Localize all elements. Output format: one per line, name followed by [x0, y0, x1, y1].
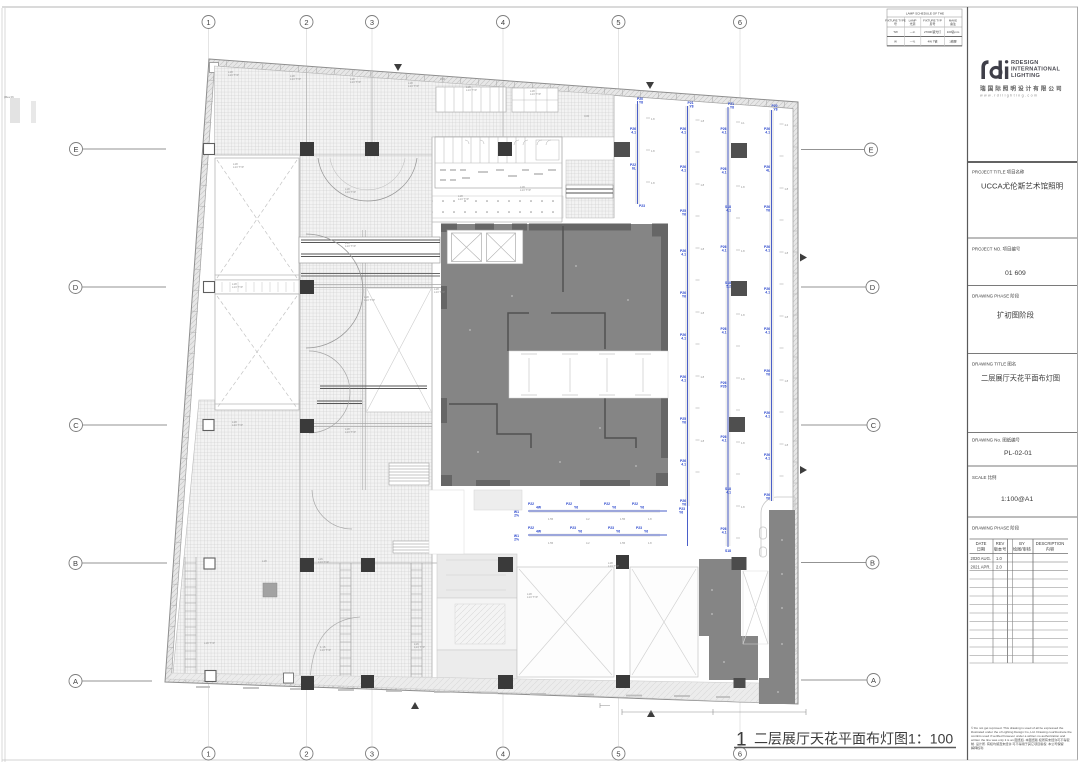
- svg-text:1.8: 1.8: [648, 541, 652, 545]
- svg-text:内容: 内容: [1046, 546, 1054, 553]
- svg-text:1: 1: [206, 749, 210, 758]
- svg-text:3: 3: [370, 749, 374, 758]
- svg-text:DRAWING PHASE 阶段: DRAWING PHASE 阶段: [972, 293, 1020, 300]
- svg-text:1.55: 1.55: [548, 541, 554, 545]
- svg-text:1.8: 1.8: [701, 375, 705, 379]
- svg-text:L13 TYP: L13 TYP: [350, 80, 361, 84]
- svg-text:Y6: Y6: [766, 373, 770, 377]
- svg-text:P23: P23: [570, 526, 576, 530]
- svg-text:1.55: 1.55: [620, 517, 626, 521]
- svg-text:DRAWING PHASE 阶段: DRAWING PHASE 阶段: [972, 525, 1020, 532]
- svg-text:4.1: 4.1: [681, 337, 686, 341]
- svg-text:2021 APR.: 2021 APR.: [971, 565, 991, 570]
- svg-text:P23: P23: [636, 526, 642, 530]
- svg-text:4.1: 4.1: [722, 331, 727, 335]
- svg-text:1.8: 1.8: [785, 187, 789, 191]
- svg-text:4.1: 4.1: [765, 249, 770, 253]
- svg-text:6: 6: [738, 18, 742, 27]
- svg-text:E: E: [868, 145, 873, 154]
- svg-text:4.1: 4.1: [681, 169, 686, 173]
- svg-text:L13 TYP: L13 TYP: [520, 188, 531, 192]
- svg-text:厉号: 厉号: [930, 21, 936, 26]
- svg-text:1.8: 1.8: [785, 315, 789, 319]
- svg-text:2020 AUG.: 2020 AUG.: [971, 556, 992, 561]
- svg-text:4.1: 4.1: [722, 439, 727, 443]
- svg-text:1.8: 1.8: [741, 313, 745, 317]
- svg-text:1镇瞿: 1镇瞿: [949, 39, 956, 44]
- svg-text:C: C: [871, 421, 877, 430]
- svg-text:6L: 6L: [632, 167, 636, 171]
- svg-text:Y6: Y6: [682, 421, 686, 425]
- svg-text:DATE: DATE: [976, 541, 987, 546]
- svg-text:1:100@A1: 1:100@A1: [1001, 496, 1033, 503]
- svg-text:1.8: 1.8: [648, 517, 652, 521]
- svg-text:1.8: 1.8: [741, 249, 745, 253]
- svg-text:Y6: Y6: [679, 511, 683, 515]
- svg-text:4.2: 4.2: [785, 123, 789, 127]
- svg-text:L13 TYP: L13 TYP: [364, 298, 375, 302]
- svg-text:L13 TYP: L13 TYP: [318, 560, 329, 564]
- svg-text:P22: P22: [604, 502, 610, 506]
- svg-text:1.55: 1.55: [620, 541, 626, 545]
- svg-text:DRAWING TITLE 图名: DRAWING TITLE 图名: [972, 361, 1016, 368]
- svg-text:4.1: 4.1: [726, 491, 731, 495]
- svg-text:LAMP SCHEDULE OF THE: LAMP SCHEDULE OF THE: [906, 12, 944, 16]
- svg-text:C30: C30: [440, 77, 446, 81]
- svg-text:4.1: 4.1: [765, 291, 770, 295]
- svg-text:1.55: 1.55: [548, 517, 554, 521]
- svg-text:L18 TYP: L18 TYP: [204, 641, 215, 645]
- svg-text:1.8: 1.8: [741, 505, 745, 509]
- svg-text:4: 4: [501, 749, 505, 758]
- svg-text:P22: P22: [632, 502, 638, 506]
- svg-text:Y6: Y6: [682, 213, 686, 217]
- svg-text:P26: P26: [720, 385, 726, 389]
- svg-text:4.1: 4.1: [681, 379, 686, 383]
- svg-text:3: 3: [370, 18, 374, 27]
- svg-text:二层展厅天花平面布灯图: 二层展厅天花平面布灯图: [981, 374, 1060, 383]
- svg-text:4.2: 4.2: [586, 541, 590, 545]
- svg-text:4.1: 4.1: [765, 415, 770, 419]
- svg-text:扩初图阶段: 扩初图阶段: [997, 311, 1035, 320]
- svg-text:Y6: Y6: [574, 506, 578, 510]
- svg-text:2.0: 2.0: [996, 565, 1002, 570]
- svg-text:5: 5: [616, 749, 620, 758]
- svg-text:4.1: 4.1: [722, 171, 727, 175]
- svg-text:A: A: [871, 676, 876, 685]
- svg-text:Y6: Y6: [644, 530, 648, 534]
- svg-text:L13 TYP: L13 TYP: [228, 73, 239, 77]
- svg-text:PROJECT TITLE 项目名称: PROJECT TITLE 项目名称: [972, 169, 1025, 176]
- svg-text:L13 TYP: L13 TYP: [345, 244, 356, 248]
- svg-text:4W: 4W: [536, 506, 542, 510]
- svg-text:LIGHTING: LIGHTING: [1011, 73, 1040, 79]
- svg-text:4.2: 4.2: [586, 517, 590, 521]
- svg-text:RDESIGN: RDESIGN: [1011, 60, 1039, 66]
- svg-text:TW: TW: [893, 30, 898, 34]
- svg-text:L13 TYP: L13 TYP: [608, 564, 619, 568]
- svg-text:L13 TYP: L13 TYP: [414, 645, 425, 649]
- svg-text:SCALE 比例: SCALE 比例: [972, 474, 997, 481]
- svg-text:1.8: 1.8: [741, 441, 745, 445]
- svg-text:C: C: [73, 421, 79, 430]
- svg-text:D: D: [870, 283, 876, 292]
- svg-text:4.1: 4.1: [765, 131, 770, 135]
- svg-text:4.1: 4.1: [681, 463, 686, 467]
- svg-text:1.8: 1.8: [701, 247, 705, 251]
- svg-text:2: 2: [304, 18, 308, 27]
- svg-text:L13 TYP: L13 TYP: [345, 190, 356, 194]
- svg-text:Y8: Y8: [689, 105, 693, 109]
- svg-text:Y6: Y6: [640, 506, 644, 510]
- svg-text:4.1: 4.1: [765, 457, 770, 461]
- svg-text:4.1: 4.1: [722, 531, 727, 535]
- svg-text:6: 6: [738, 749, 742, 758]
- svg-text:L13 TYP: L13 TYP: [458, 197, 469, 201]
- svg-text:P22: P22: [528, 526, 534, 530]
- svg-text:D: D: [73, 283, 79, 292]
- svg-text:二层展厅天花平面布灯图1：100: 二层展厅天花平面布灯图1：100: [754, 731, 953, 747]
- svg-text:—¼: —¼: [910, 30, 916, 34]
- svg-text:4.1: 4.1: [681, 253, 686, 257]
- svg-text:A: A: [73, 677, 78, 686]
- svg-text:瑞国际照明设计有限公司: 瑞国际照明设计有限公司: [980, 85, 1064, 93]
- svg-text:1: 1: [206, 18, 210, 27]
- svg-text:1.8: 1.8: [651, 149, 655, 153]
- svg-text:4.1: 4.1: [741, 121, 745, 125]
- svg-text:Y6: Y6: [578, 530, 582, 534]
- svg-text:L13 TYP: L13 TYP: [345, 430, 356, 434]
- svg-text:版本号: 版本号: [994, 546, 1007, 553]
- svg-text:L13 TYP: L13 TYP: [320, 648, 331, 652]
- svg-text:P22: P22: [528, 502, 534, 506]
- svg-text:DRAWING No. 图纸编号: DRAWING No. 图纸编号: [972, 437, 1021, 444]
- svg-text:Y6: Y6: [682, 503, 686, 507]
- svg-text:P23: P23: [608, 526, 614, 530]
- svg-text:Y6: Y6: [616, 530, 620, 534]
- svg-text:INTERNATIONAL: INTERNATIONAL: [1011, 67, 1060, 73]
- svg-text:L13 TYP: L13 TYP: [466, 88, 477, 92]
- svg-text:Y6: Y6: [766, 497, 770, 501]
- svg-text:1.8: 1.8: [701, 119, 705, 123]
- svg-text:光源: 光源: [910, 21, 916, 26]
- svg-text:2700K镇光灯: 2700K镇光灯: [924, 29, 941, 34]
- svg-text:备注: 备注: [950, 21, 956, 26]
- svg-text:号: 号: [894, 21, 897, 26]
- svg-text:4W T镇: 4W T镇: [928, 39, 938, 44]
- svg-text:P23: P23: [639, 204, 645, 208]
- svg-text:1.8: 1.8: [785, 379, 789, 383]
- svg-text:1.8: 1.8: [651, 117, 655, 121]
- svg-text:L13 TYP: L13 TYP: [408, 84, 419, 88]
- svg-text:1.8: 1.8: [741, 185, 745, 189]
- svg-text:UCCA尤伦斯艺术馆照明: UCCA尤伦斯艺术馆照明: [981, 181, 1064, 191]
- svg-text:1.8: 1.8: [741, 377, 745, 381]
- svg-text:制. 设计所. 有权均留直未经许 可不得用于其它项目版权.: 制. 设计所. 有权均留直未经许 可不得用于其它项目版权. 本公司保留: [971, 741, 1064, 746]
- svg-text:L13 TYP: L13 TYP: [232, 423, 243, 427]
- svg-text:—½: —½: [910, 40, 916, 44]
- svg-text:5.2: 5.2: [726, 285, 731, 289]
- svg-text:www.rdilighting.com: www.rdilighting.com: [980, 94, 1038, 98]
- svg-text:L13 TYP: L13 TYP: [434, 290, 445, 294]
- svg-text:2%: 2%: [514, 538, 519, 542]
- svg-text:Y8: Y8: [773, 108, 777, 112]
- svg-text:Y6: Y6: [612, 506, 616, 510]
- svg-text:Y6: Y6: [682, 295, 686, 299]
- svg-text:1.8: 1.8: [701, 311, 705, 315]
- svg-text:C30: C30: [584, 114, 590, 118]
- svg-text:4.1: 4.1: [681, 131, 686, 135]
- svg-text:4.1: 4.1: [722, 131, 727, 135]
- svg-text:5: 5: [616, 18, 620, 27]
- svg-text:L13 TYP: L13 TYP: [527, 595, 538, 599]
- svg-text:4.1: 4.1: [631, 131, 636, 135]
- svg-text:P22: P22: [566, 502, 572, 506]
- svg-text:REV: REV: [996, 541, 1005, 546]
- svg-text:L13 TYP: L13 TYP: [232, 285, 243, 289]
- svg-text:B: B: [870, 558, 875, 567]
- svg-text:4W: 4W: [536, 530, 542, 534]
- svg-text:Y6: Y6: [766, 209, 770, 213]
- svg-text:L13 TYP: L13 TYP: [233, 165, 244, 169]
- svg-text:4.1: 4.1: [726, 209, 731, 213]
- svg-text:解释权利.: 解释权利.: [971, 745, 984, 750]
- svg-text:绘图/审核: 绘图/审核: [1013, 546, 1032, 553]
- svg-text:1.8: 1.8: [701, 183, 705, 187]
- svg-text:S18: S18: [725, 549, 731, 553]
- svg-text:PL-02-01: PL-02-01: [1004, 450, 1032, 457]
- svg-text:W: W: [894, 40, 897, 44]
- svg-text:Y8: Y8: [639, 101, 643, 105]
- svg-text:4.1: 4.1: [722, 249, 727, 253]
- svg-text:1.0: 1.0: [996, 556, 1002, 561]
- svg-text:L13 TYP: L13 TYP: [290, 77, 301, 81]
- svg-text:2: 2: [304, 749, 308, 758]
- svg-text:1.8: 1.8: [651, 181, 655, 185]
- svg-text:1.8: 1.8: [701, 439, 705, 443]
- svg-text:1.8: 1.8: [785, 251, 789, 255]
- svg-text:BY: BY: [1019, 541, 1025, 546]
- svg-text:01 609: 01 609: [1005, 270, 1026, 277]
- svg-text:4L: 4L: [766, 169, 770, 173]
- svg-text:4: 4: [501, 18, 505, 27]
- svg-text:DESCRIPTION: DESCRIPTION: [1036, 541, 1065, 546]
- svg-text:2%: 2%: [514, 514, 519, 518]
- svg-text:B: B: [73, 559, 78, 568]
- svg-text:100镜mm: 100镜mm: [947, 29, 960, 34]
- svg-text:E: E: [73, 145, 78, 154]
- svg-text:4.1: 4.1: [765, 331, 770, 335]
- svg-text:1.8: 1.8: [785, 443, 789, 447]
- svg-text:L13 TYP: L13 TYP: [530, 92, 541, 96]
- svg-text:Y8: Y8: [730, 106, 734, 110]
- svg-text:PROJECT NO. 项目编号: PROJECT NO. 项目编号: [972, 246, 1021, 253]
- svg-text:L18: L18: [262, 559, 267, 563]
